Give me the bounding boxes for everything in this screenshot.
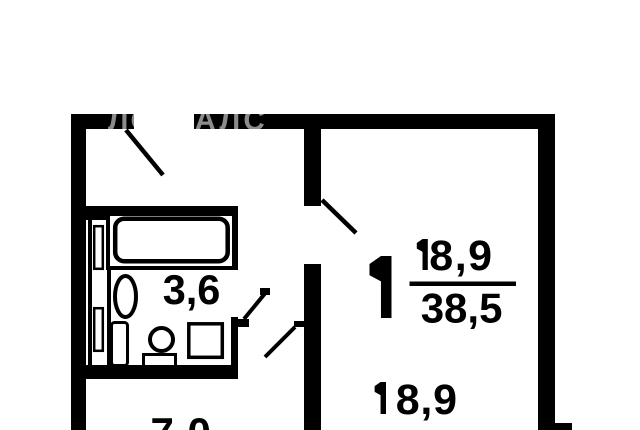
svg-text:8,9: 8,9 — [396, 376, 458, 424]
svg-text:ЛОК: ЛОК — [108, 105, 175, 137]
svg-text:38,5: 38,5 — [421, 285, 503, 332]
svg-text:8,9: 8,9 — [429, 232, 493, 280]
svg-text:7,0: 7,0 — [151, 409, 212, 430]
svg-text:3,6: 3,6 — [163, 266, 221, 313]
svg-text:АЛС: АЛС — [195, 104, 268, 137]
